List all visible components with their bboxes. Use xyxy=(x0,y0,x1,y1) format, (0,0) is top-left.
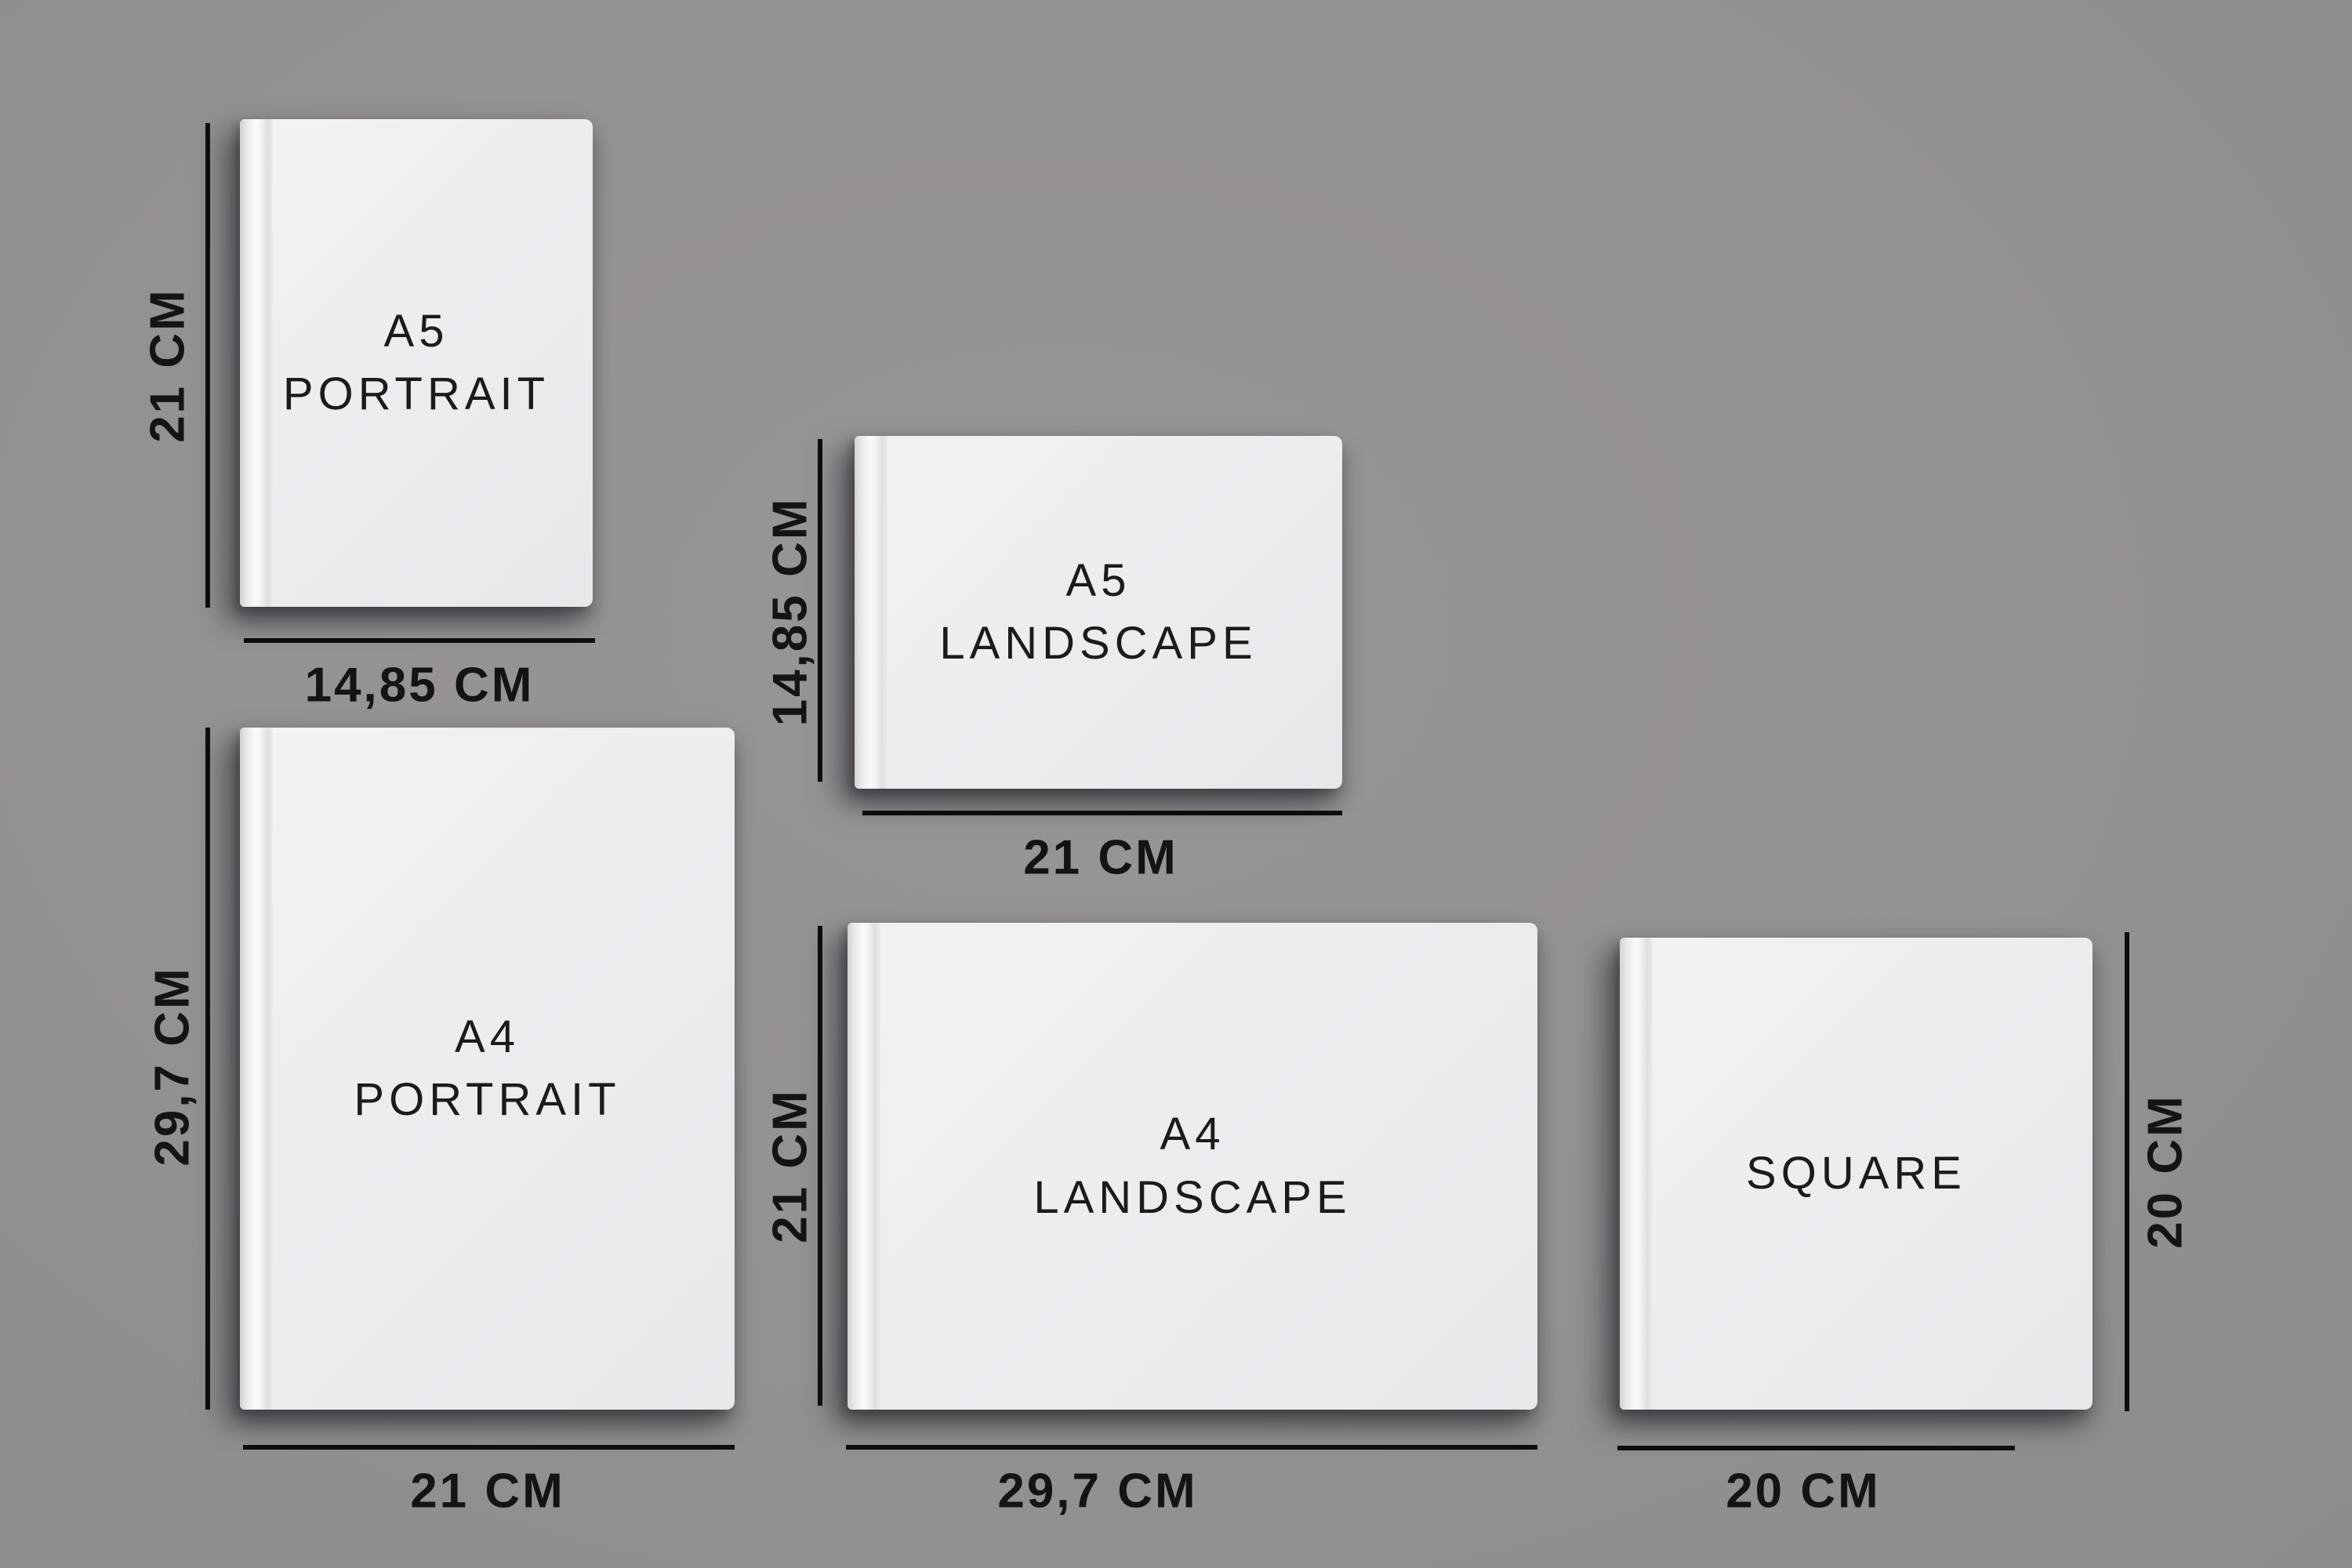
height-dimension-line xyxy=(818,926,822,1406)
height-dimension-label: 29,7 CM xyxy=(145,966,201,1166)
book-title-line1: A5 xyxy=(384,300,449,363)
width-dimension-line xyxy=(846,1445,1537,1450)
height-dimension-label: 20 CM xyxy=(2138,1094,2194,1249)
book-title: SQUARE xyxy=(1746,1142,1966,1205)
book-title-line2: PORTRAIT xyxy=(354,1069,620,1131)
width-dimension-label: 14,85 CM xyxy=(305,658,535,713)
book-square: SQUARE xyxy=(1620,938,2092,1410)
book-title-line2: PORTRAIT xyxy=(283,363,550,426)
height-dimension-line xyxy=(205,123,210,608)
width-dimension-line xyxy=(243,1445,735,1450)
book-a4-landscape: A4 LANDSCAPE xyxy=(848,923,1537,1410)
book-a4-portrait: A4 PORTRAIT xyxy=(240,728,735,1410)
width-dimension-label: 20 CM xyxy=(1726,1464,1881,1519)
book-title-line2: LANDSCAPE xyxy=(939,612,1257,675)
width-dimension-line xyxy=(244,638,595,643)
width-dimension-line xyxy=(1617,1446,2015,1450)
size-comparison-diagram: A5 PORTRAIT 21 CM 14,85 CM A5 LANDSCAPE … xyxy=(0,0,2352,1568)
book-title: A4 LANDSCAPE xyxy=(1033,1103,1351,1229)
width-dimension-line xyxy=(862,811,1342,815)
height-dimension-line xyxy=(2125,932,2129,1411)
width-dimension-label: 21 CM xyxy=(1023,830,1178,886)
book-title: A4 PORTRAIT xyxy=(354,1006,620,1131)
height-dimension-label: 21 CM xyxy=(140,288,196,443)
book-a5-landscape: A5 LANDSCAPE xyxy=(855,436,1342,789)
height-dimension-line xyxy=(818,439,822,782)
book-spine xyxy=(240,119,273,607)
book-title-line1: A4 xyxy=(1160,1103,1225,1166)
width-dimension-label: 29,7 CM xyxy=(997,1464,1197,1519)
height-dimension-label: 21 CM xyxy=(763,1088,818,1243)
book-title: A5 PORTRAIT xyxy=(283,300,550,426)
book-spine xyxy=(848,923,880,1410)
book-title-line1: SQUARE xyxy=(1746,1142,1966,1205)
book-title-line1: A5 xyxy=(1066,550,1131,612)
width-dimension-label: 21 CM xyxy=(410,1464,565,1519)
book-spine xyxy=(855,436,887,789)
book-a5-portrait: A5 PORTRAIT xyxy=(240,119,593,607)
height-dimension-line xyxy=(205,728,210,1410)
book-title-line1: A4 xyxy=(455,1006,520,1069)
book-title: A5 LANDSCAPE xyxy=(939,550,1257,675)
book-spine xyxy=(1620,938,1653,1410)
book-spine xyxy=(240,728,273,1410)
height-dimension-label: 14,85 CM xyxy=(763,497,818,727)
book-title-line2: LANDSCAPE xyxy=(1033,1167,1351,1229)
